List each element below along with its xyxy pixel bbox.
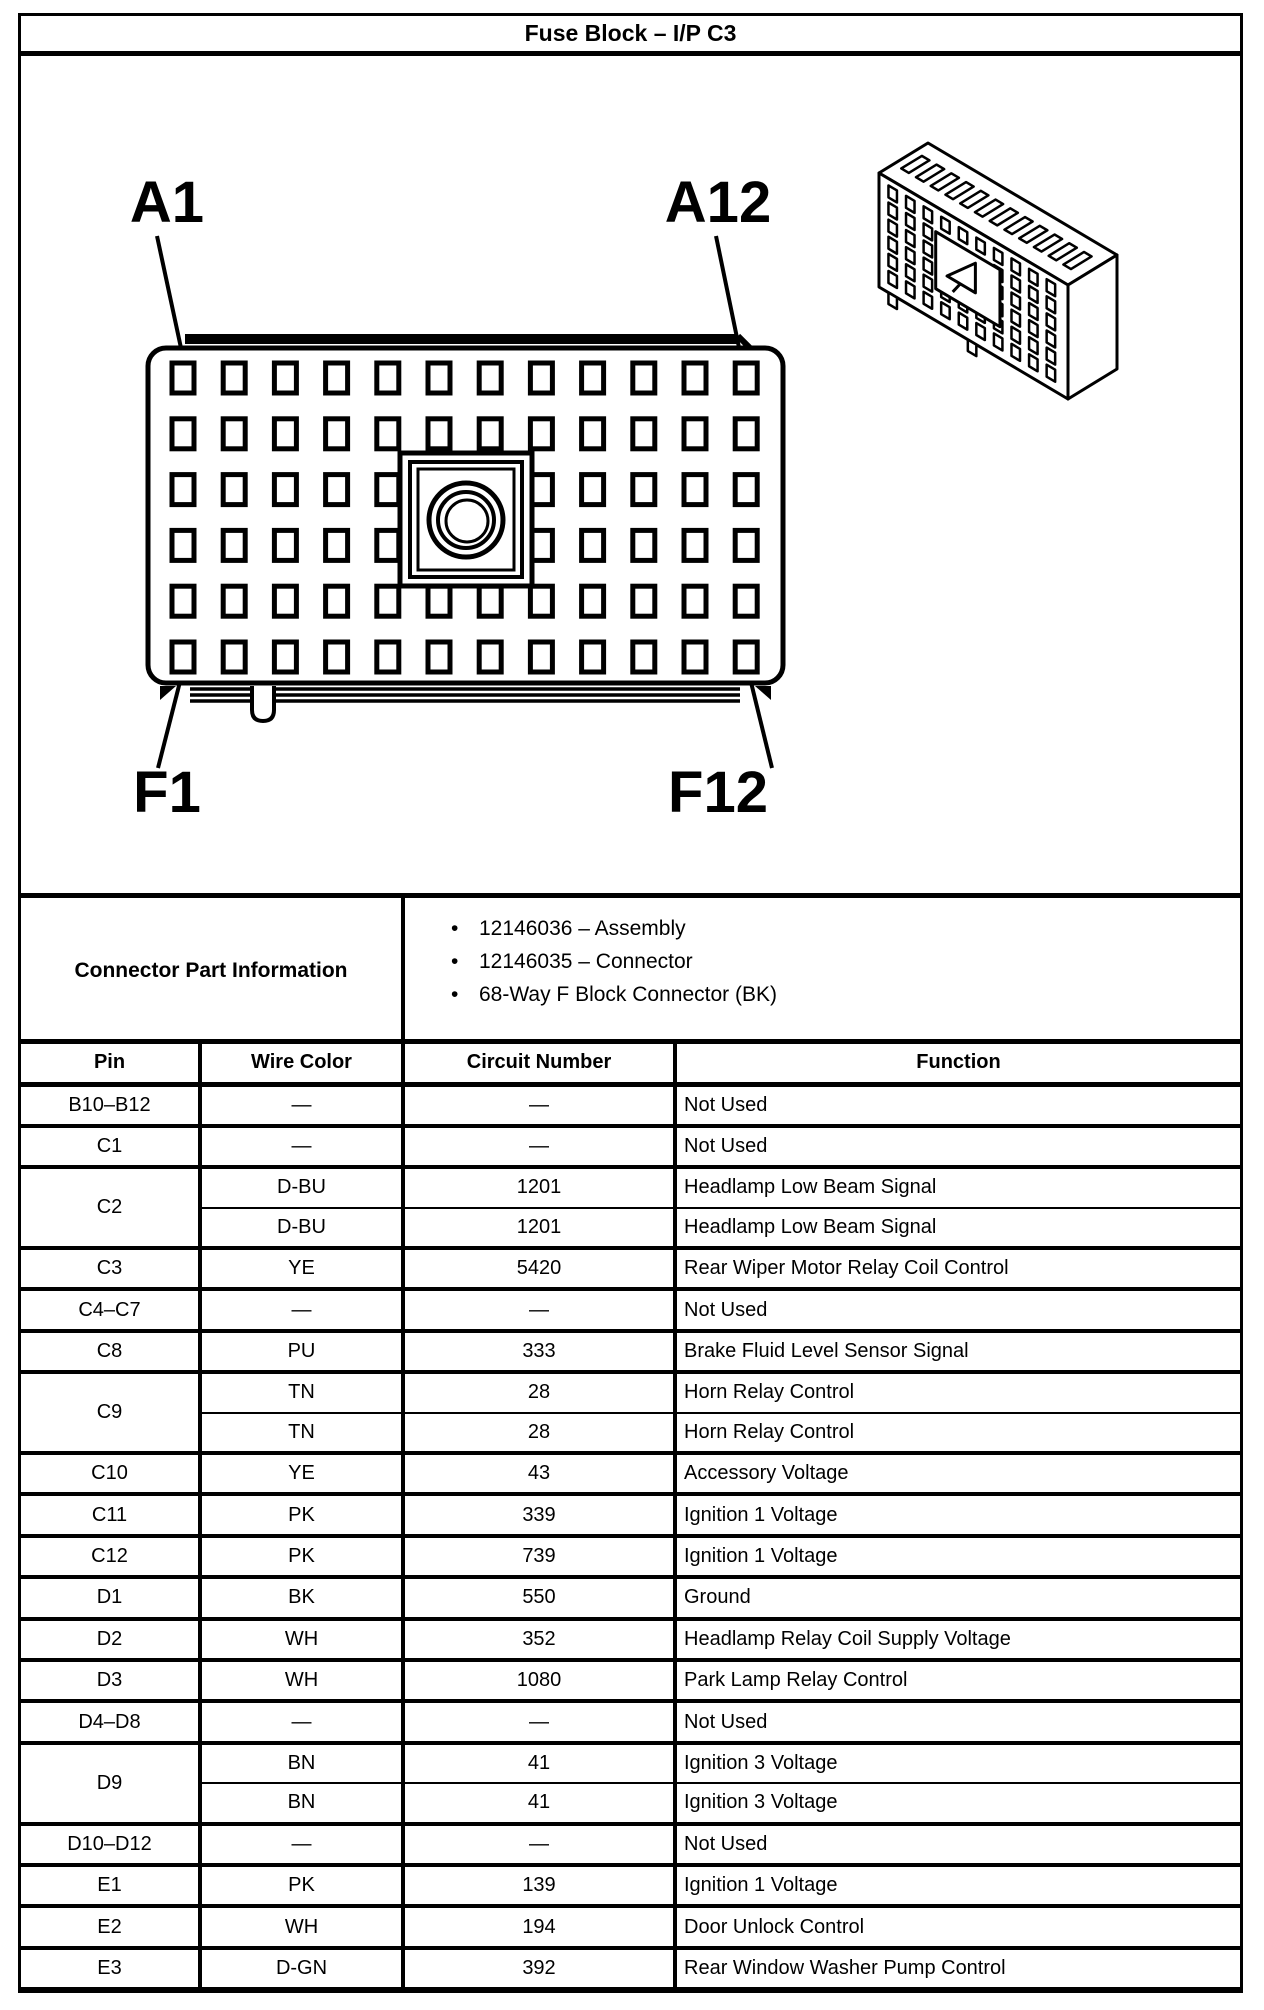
circuit-number-cell: 43 — [405, 1455, 677, 1492]
pin-cell: D4–D8 — [21, 1703, 202, 1740]
pin-cell: E2 — [21, 1908, 202, 1945]
table-row: B10–B12——Not Used — [21, 1087, 1240, 1128]
function-cell: Ground — [677, 1579, 1240, 1616]
wire-color-cell: BN — [202, 1745, 405, 1782]
table-entry: BN41Ignition 3 Voltage — [202, 1745, 1240, 1782]
pin-cell: C8 — [21, 1333, 202, 1370]
terminal-pin — [377, 642, 399, 672]
table-entry: WH194Door Unlock Control — [202, 1908, 1240, 1945]
corner-tick-right — [755, 686, 771, 700]
wire-color-cell: BN — [202, 1784, 405, 1821]
pin-cell: E1 — [21, 1867, 202, 1904]
circuit-number-cell: 352 — [405, 1621, 677, 1658]
manual-page: Fuse Block – I/P C3 A1 A12 F1 F12 — [0, 0, 1264, 2010]
function-cell: Not Used — [677, 1826, 1240, 1863]
table-entry: YE5420Rear Wiper Motor Relay Coil Contro… — [202, 1250, 1240, 1287]
pin-label-f12: F12 — [668, 760, 768, 825]
circuit-number-cell: 550 — [405, 1579, 677, 1616]
circuit-number-cell: 739 — [405, 1538, 677, 1575]
pin-cell: B10–B12 — [21, 1087, 202, 1124]
terminal-pin — [172, 419, 194, 449]
pin-cell: E3 — [21, 1950, 202, 1987]
table-row: D3WH1080Park Lamp Relay Control — [21, 1662, 1240, 1703]
terminal-pin — [582, 419, 604, 449]
terminal-pin — [172, 363, 194, 393]
terminal-pin — [735, 475, 757, 505]
terminal-pin — [274, 419, 296, 449]
circuit-number-cell: 41 — [405, 1745, 677, 1782]
center-block — [400, 453, 532, 586]
terminal-pin — [479, 586, 501, 616]
part-info-item: 68-Way F Block Connector (BK) — [451, 978, 1240, 1011]
circuit-number-cell: — — [405, 1703, 677, 1740]
function-cell: Ignition 1 Voltage — [677, 1867, 1240, 1904]
function-cell: Accessory Voltage — [677, 1455, 1240, 1492]
terminal-pin — [479, 419, 501, 449]
terminal-pin — [223, 419, 245, 449]
circuit-number-cell: 1201 — [405, 1169, 677, 1206]
header-pin: Pin — [21, 1044, 202, 1082]
terminal-pin — [582, 642, 604, 672]
table-entry: ——Not Used — [202, 1703, 1240, 1740]
terminal-pin — [735, 586, 757, 616]
pin-label-a12: A12 — [665, 170, 771, 235]
terminal-pin — [377, 530, 399, 560]
pin-cell: D9 — [21, 1745, 202, 1822]
terminal-pin — [274, 363, 296, 393]
terminal-pin — [530, 419, 552, 449]
pin-cell: C2 — [21, 1169, 202, 1246]
terminal-pin — [326, 586, 348, 616]
circuit-number-cell: — — [405, 1128, 677, 1165]
circuit-number-cell: 1080 — [405, 1662, 677, 1699]
terminal-pin — [223, 642, 245, 672]
table-row: C11PK339Ignition 1 Voltage — [21, 1496, 1240, 1537]
table-entry: PK139Ignition 1 Voltage — [202, 1867, 1240, 1904]
terminal-pin — [735, 530, 757, 560]
terminal-pin — [377, 586, 399, 616]
function-cell: Rear Window Washer Pump Control — [677, 1950, 1240, 1987]
wire-color-cell: TN — [202, 1374, 405, 1411]
terminal-pin — [684, 642, 706, 672]
pin-table-body: B10–B12——Not UsedC1——Not UsedC2D-BU1201H… — [21, 1087, 1240, 1992]
wire-color-cell: WH — [202, 1662, 405, 1699]
function-cell: Headlamp Low Beam Signal — [677, 1209, 1240, 1246]
terminal-pin — [633, 530, 655, 560]
function-cell: Not Used — [677, 1128, 1240, 1165]
pin-label-f1: F1 — [133, 760, 201, 825]
terminal-pin — [274, 530, 296, 560]
circuit-number-cell: 333 — [405, 1333, 677, 1370]
table-row: D10–D12——Not Used — [21, 1826, 1240, 1867]
table-row: D2WH352Headlamp Relay Coil Supply Voltag… — [21, 1621, 1240, 1662]
terminal-pin — [172, 642, 194, 672]
wire-color-cell: WH — [202, 1621, 405, 1658]
page-title: Fuse Block – I/P C3 — [525, 20, 737, 47]
table-row: D1BK550Ground — [21, 1579, 1240, 1620]
pin-cell: D2 — [21, 1621, 202, 1658]
wire-color-cell: PK — [202, 1538, 405, 1575]
pin-cell: C1 — [21, 1128, 202, 1165]
terminal-pin — [684, 586, 706, 616]
terminal-pin — [633, 419, 655, 449]
table-entry: TN28Horn Relay Control — [202, 1412, 1240, 1451]
connector-part-information-section: Connector Part Information 12146036 – As… — [21, 893, 1240, 1044]
table-entry: D-BU1201Headlamp Low Beam Signal — [202, 1169, 1240, 1206]
terminal-pin — [326, 419, 348, 449]
table-row: E2WH194Door Unlock Control — [21, 1908, 1240, 1949]
pin-cell: D3 — [21, 1662, 202, 1699]
terminal-pin — [633, 475, 655, 505]
pin-cell: C9 — [21, 1374, 202, 1451]
terminal-pin — [582, 530, 604, 560]
function-cell: Horn Relay Control — [677, 1414, 1240, 1451]
function-cell: Horn Relay Control — [677, 1374, 1240, 1411]
terminal-pin — [326, 475, 348, 505]
terminal-pin — [428, 419, 450, 449]
terminal-pin — [377, 363, 399, 393]
terminal-pin — [633, 642, 655, 672]
wire-color-cell: — — [202, 1087, 405, 1124]
terminal-pin — [633, 363, 655, 393]
terminal-pin — [326, 530, 348, 560]
function-cell: Headlamp Relay Coil Supply Voltage — [677, 1621, 1240, 1658]
function-cell: Headlamp Low Beam Signal — [677, 1169, 1240, 1206]
circuit-number-cell: 139 — [405, 1867, 677, 1904]
circuit-number-cell: 392 — [405, 1950, 677, 1987]
wire-color-cell: — — [202, 1128, 405, 1165]
table-entry: D-GN392Rear Window Washer Pump Control — [202, 1950, 1240, 1987]
table-row: C9TN28Horn Relay ControlTN28Horn Relay C… — [21, 1374, 1240, 1455]
wire-color-cell: PU — [202, 1333, 405, 1370]
terminal-pin — [530, 642, 552, 672]
part-info-item: 12146036 – Assembly — [451, 912, 1240, 945]
terminal-pin — [530, 586, 552, 616]
terminal-pin — [684, 419, 706, 449]
pin-cell: D1 — [21, 1579, 202, 1616]
table-row: D9BN41Ignition 3 VoltageBN41Ignition 3 V… — [21, 1745, 1240, 1826]
wire-color-cell: — — [202, 1291, 405, 1328]
terminal-pin — [223, 530, 245, 560]
table-entry: YE43Accessory Voltage — [202, 1455, 1240, 1492]
wire-color-cell: PK — [202, 1867, 405, 1904]
function-cell: Not Used — [677, 1703, 1240, 1740]
terminal-pin — [684, 475, 706, 505]
pin-cell: D10–D12 — [21, 1826, 202, 1863]
pin-table-header: Pin Wire Color Circuit Number Function — [21, 1044, 1240, 1087]
header-circuit-number: Circuit Number — [405, 1044, 677, 1082]
wire-color-cell: D-BU — [202, 1169, 405, 1206]
table-entry: ——Not Used — [202, 1826, 1240, 1863]
terminal-pin — [735, 363, 757, 393]
function-cell: Door Unlock Control — [677, 1908, 1240, 1945]
pin-cell: C3 — [21, 1250, 202, 1287]
part-info-item: 12146035 – Connector — [451, 945, 1240, 978]
connector-front-view — [148, 336, 783, 721]
terminal-pin — [326, 642, 348, 672]
corner-tick-left — [160, 686, 176, 700]
function-cell: Not Used — [677, 1087, 1240, 1124]
circuit-number-cell: — — [405, 1826, 677, 1863]
connector-diagram: A1 A12 F1 F12 — [0, 56, 1264, 893]
circuit-number-cell: 339 — [405, 1496, 677, 1533]
table-entry: ——Not Used — [202, 1128, 1240, 1165]
wire-color-cell: PK — [202, 1496, 405, 1533]
pin-cell: C11 — [21, 1496, 202, 1533]
wire-color-cell: YE — [202, 1455, 405, 1492]
table-entry: ——Not Used — [202, 1087, 1240, 1124]
terminal-pin — [530, 363, 552, 393]
circuit-number-cell: 194 — [405, 1908, 677, 1945]
terminal-pin — [684, 363, 706, 393]
terminal-pin — [172, 586, 194, 616]
circuit-number-cell: — — [405, 1087, 677, 1124]
table-entry: TN28Horn Relay Control — [202, 1374, 1240, 1411]
terminal-pin — [428, 363, 450, 393]
title-bar: Fuse Block – I/P C3 — [21, 16, 1240, 56]
table-row: C12PK739Ignition 1 Voltage — [21, 1538, 1240, 1579]
terminal-pin — [223, 363, 245, 393]
table-entry: D-BU1201Headlamp Low Beam Signal — [202, 1207, 1240, 1246]
terminal-pin — [377, 475, 399, 505]
terminal-pin — [223, 586, 245, 616]
function-cell: Ignition 3 Voltage — [677, 1784, 1240, 1821]
terminal-pin — [582, 586, 604, 616]
connector-3d-view — [879, 143, 1117, 399]
function-cell: Not Used — [677, 1291, 1240, 1328]
wire-color-cell: D-BU — [202, 1209, 405, 1246]
table-entry: ——Not Used — [202, 1291, 1240, 1328]
terminal-pin — [735, 419, 757, 449]
terminal-pin — [274, 475, 296, 505]
circuit-number-cell: 28 — [405, 1414, 677, 1451]
table-entry: BK550Ground — [202, 1579, 1240, 1616]
terminal-pin — [582, 475, 604, 505]
table-row: C4–C7——Not Used — [21, 1291, 1240, 1332]
terminal-pin — [633, 586, 655, 616]
table-entry: WH352Headlamp Relay Coil Supply Voltage — [202, 1621, 1240, 1658]
terminal-pin — [172, 530, 194, 560]
table-entry: PU333Brake Fluid Level Sensor Signal — [202, 1333, 1240, 1370]
terminal-pin — [223, 475, 245, 505]
function-cell: Rear Wiper Motor Relay Coil Control — [677, 1250, 1240, 1287]
terminal-pin — [428, 642, 450, 672]
table-row: C2D-BU1201Headlamp Low Beam SignalD-BU12… — [21, 1169, 1240, 1250]
table-row: C10YE43Accessory Voltage — [21, 1455, 1240, 1496]
header-function: Function — [677, 1044, 1240, 1082]
circuit-number-cell: 1201 — [405, 1209, 677, 1246]
wire-color-cell: BK — [202, 1579, 405, 1616]
circuit-number-cell: 28 — [405, 1374, 677, 1411]
function-cell: Ignition 1 Voltage — [677, 1496, 1240, 1533]
header-wire-color: Wire Color — [202, 1044, 405, 1082]
table-row: E1PK139Ignition 1 Voltage — [21, 1867, 1240, 1908]
terminal-pin — [479, 363, 501, 393]
wire-color-cell: YE — [202, 1250, 405, 1287]
table-entry: BN41Ignition 3 Voltage — [202, 1782, 1240, 1821]
terminal-pin — [326, 363, 348, 393]
connector-part-information-list: 12146036 – Assembly 12146035 – Connector… — [405, 898, 1240, 1044]
terminal-pin — [428, 586, 450, 616]
function-cell: Park Lamp Relay Control — [677, 1662, 1240, 1699]
pin-cell: C12 — [21, 1538, 202, 1575]
terminal-pin — [274, 586, 296, 616]
pin-table: Pin Wire Color Circuit Number Function B… — [21, 1039, 1240, 1991]
terminal-pin — [735, 642, 757, 672]
pin-cell: C4–C7 — [21, 1291, 202, 1328]
wire-color-cell: — — [202, 1826, 405, 1863]
function-cell: Ignition 1 Voltage — [677, 1538, 1240, 1575]
circuit-number-cell: 5420 — [405, 1250, 677, 1287]
table-row: C3YE5420Rear Wiper Motor Relay Coil Cont… — [21, 1250, 1240, 1291]
wire-color-cell: — — [202, 1703, 405, 1740]
pin-cell: C10 — [21, 1455, 202, 1492]
table-row: C8PU333Brake Fluid Level Sensor Signal — [21, 1333, 1240, 1374]
table-entry: PK339Ignition 1 Voltage — [202, 1496, 1240, 1533]
table-entry: PK739Ignition 1 Voltage — [202, 1538, 1240, 1575]
terminal-pin — [479, 642, 501, 672]
mount-notch — [252, 686, 274, 721]
terminal-pin — [582, 363, 604, 393]
circuit-number-cell: 41 — [405, 1784, 677, 1821]
connector-part-information-label: Connector Part Information — [21, 898, 405, 1044]
terminal-pin — [684, 530, 706, 560]
circuit-number-cell: — — [405, 1291, 677, 1328]
table-row: E3D-GN392Rear Window Washer Pump Control — [21, 1950, 1240, 1991]
table-row: C1——Not Used — [21, 1128, 1240, 1169]
terminal-pin — [377, 419, 399, 449]
function-cell: Brake Fluid Level Sensor Signal — [677, 1333, 1240, 1370]
function-cell: Ignition 3 Voltage — [677, 1745, 1240, 1782]
wire-color-cell: D-GN — [202, 1950, 405, 1987]
terminal-pin — [274, 642, 296, 672]
terminal-pin — [172, 475, 194, 505]
wire-color-cell: TN — [202, 1414, 405, 1451]
table-row: D4–D8——Not Used — [21, 1703, 1240, 1744]
wire-color-cell: WH — [202, 1908, 405, 1945]
pin-label-a1: A1 — [130, 170, 204, 235]
table-entry: WH1080Park Lamp Relay Control — [202, 1662, 1240, 1699]
